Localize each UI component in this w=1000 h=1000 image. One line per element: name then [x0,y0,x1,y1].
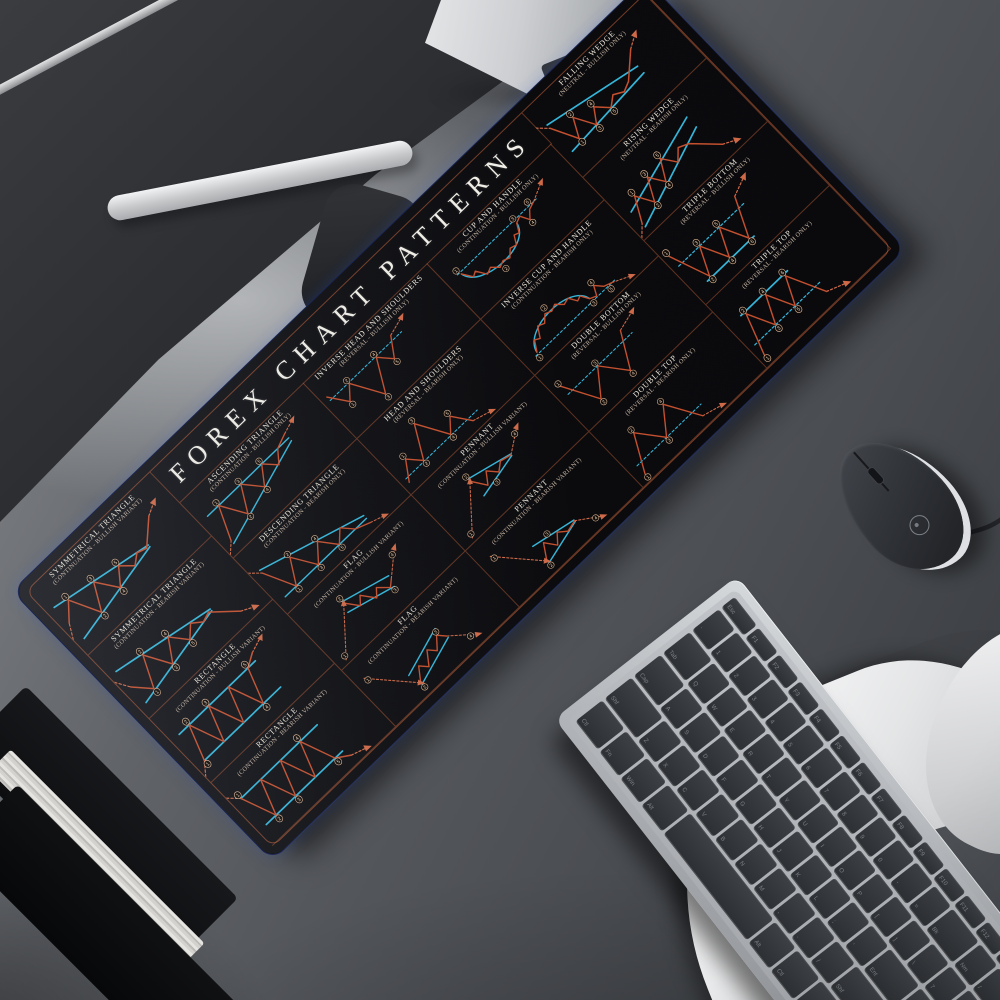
mouse-logo-icon [905,511,933,539]
desk-scene: FOREX CHART PATTERNS SYMMETRICAL TRIANGL… [0,0,1000,1000]
